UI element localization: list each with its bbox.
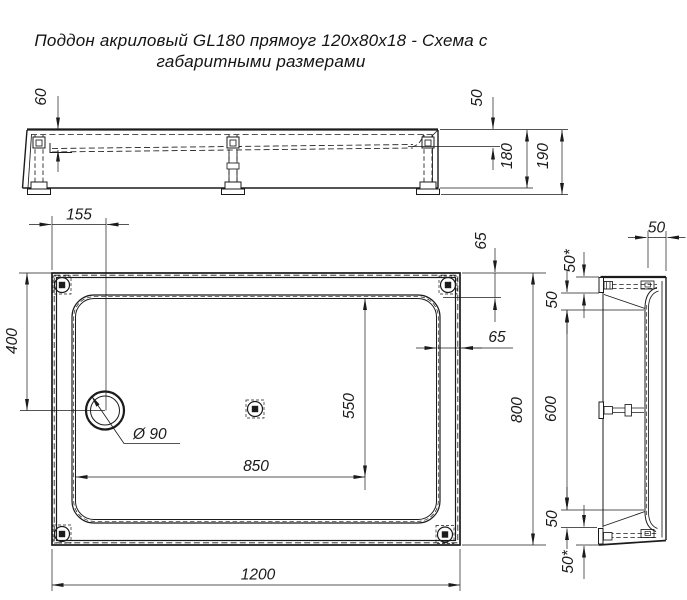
- dim-overall-width: 800: [462, 273, 546, 545]
- dim-label-drain-diameter: Ø 90: [132, 426, 167, 443]
- dim-label-50-front: 50: [469, 89, 486, 107]
- dim-side-top-50: 50: [544, 270, 567, 334]
- dim-side-600: 600: [543, 310, 567, 510]
- dim-label-65-top: 65: [473, 232, 490, 250]
- dim-drain-offset-top: 400: [4, 273, 52, 411]
- dim-label-side-600: 600: [543, 396, 560, 422]
- side-section-view: 50 50* 50 600 50: [543, 220, 686, 580]
- plan-foot-center: [246, 400, 264, 418]
- dim-label-800: 800: [509, 397, 526, 423]
- shower-tray-drawing: Поддон акриловый GL180 прямоуг 120x80x18…: [0, 0, 687, 600]
- front-leg-right: [417, 135, 440, 195]
- dim-drain-offset-left: 155: [29, 207, 129, 271]
- dim-side-bottom-star: 50*: [560, 505, 584, 579]
- plan-foot-top-right: [439, 276, 457, 294]
- dim-label-65-right: 65: [488, 329, 506, 346]
- dim-drain-diameter: Ø 90: [92, 396, 181, 444]
- side-foot-middle: [599, 402, 644, 419]
- drain-sump-step: [50, 143, 72, 153]
- dim-floor-width: 550: [341, 299, 365, 491]
- dim-label-side-50-wall: 50: [648, 220, 666, 237]
- title-line-2: габаритными размерами: [156, 52, 365, 71]
- dim-label-side-50star-top: 50*: [562, 248, 579, 272]
- dim-label-190: 190: [535, 143, 552, 169]
- dim-label-side-50star-bottom: 50*: [560, 549, 577, 573]
- dim-side-top-wall: 50: [628, 220, 686, 272]
- dim-side-top-star: 50*: [562, 248, 584, 318]
- dim-label-180: 180: [499, 143, 516, 169]
- side-foot-top: [599, 278, 654, 293]
- dim-label-155: 155: [66, 207, 92, 224]
- dim-front-heights: 180 190: [440, 130, 568, 195]
- dim-label-side-50-top: 50: [544, 291, 561, 309]
- dim-label-550: 550: [341, 393, 358, 419]
- plan-foot-top-left: [53, 276, 71, 294]
- technical-drawing-page: Поддон акриловый GL180 прямоуг 120x80x18…: [0, 0, 687, 600]
- dim-overall-length: 1200: [52, 549, 460, 591]
- dim-side-bottom-50: 50: [544, 487, 567, 549]
- drawing-title: Поддон акриловый GL180 прямоуг 120x80x18…: [34, 31, 487, 71]
- dim-floor-length: 850: [76, 458, 365, 477]
- dim-label-400: 400: [4, 328, 21, 354]
- dim-label-60: 60: [33, 88, 50, 106]
- dim-label-1200: 1200: [241, 567, 276, 584]
- dim-label-side-50-bottom: 50: [544, 510, 561, 528]
- dim-label-850: 850: [243, 458, 269, 475]
- title-line-1: Поддон акриловый GL180 прямоуг 120x80x18…: [34, 31, 487, 50]
- front-elevation-view: 60 50 180 190: [23, 88, 569, 194]
- plan-view: 155 400 Ø 90 65 65: [4, 207, 546, 592]
- dim-rim-right: 65: [416, 329, 513, 348]
